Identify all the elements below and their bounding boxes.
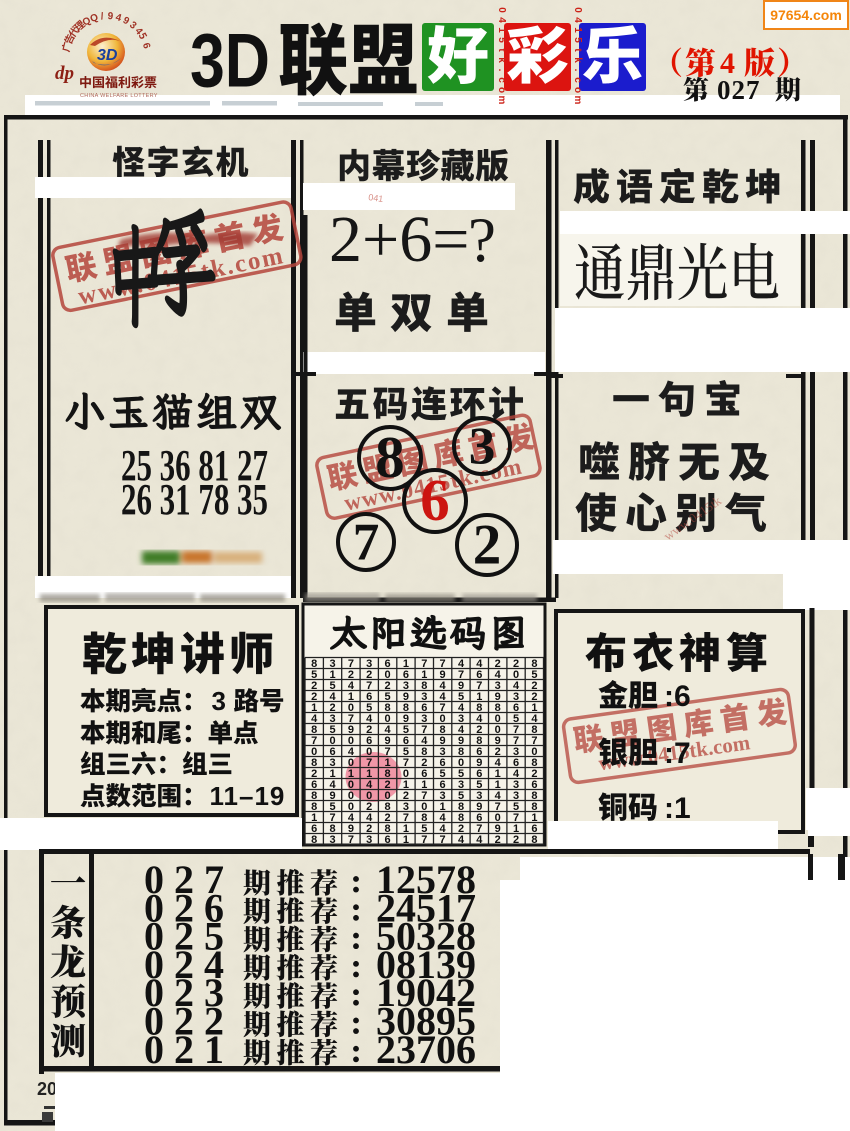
svg-text:3: 3 — [469, 416, 496, 475]
svg-text:o: o — [572, 87, 583, 93]
svg-text:k: k — [572, 57, 583, 63]
svg-text:97654.com: 97654.com — [770, 7, 842, 23]
svg-text:2: 2 — [513, 834, 519, 846]
svg-text:k: k — [496, 57, 507, 63]
svg-text:5: 5 — [496, 37, 507, 43]
svg-text:11–19: 11–19 — [210, 781, 286, 811]
svg-text:0: 0 — [496, 7, 507, 13]
svg-text:4: 4 — [496, 17, 507, 23]
svg-text:8: 8 — [531, 834, 537, 846]
svg-text:4: 4 — [458, 834, 465, 846]
svg-text:CHINA WELFARE LOTTERY: CHINA WELFARE LOTTERY — [80, 93, 158, 99]
svg-text:1: 1 — [496, 27, 507, 33]
svg-text:2: 2 — [473, 514, 502, 577]
svg-text:7: 7 — [440, 834, 446, 846]
svg-text:8: 8 — [375, 425, 404, 490]
svg-text:1: 1 — [403, 834, 409, 846]
svg-text:26 31 78 35: 26 31 78 35 — [121, 475, 268, 524]
svg-text:?: ? — [468, 205, 496, 275]
svg-text:021: 021 — [144, 1027, 234, 1072]
svg-text:3: 3 — [366, 834, 372, 846]
svg-text::7: :7 — [664, 737, 691, 770]
svg-text:4: 4 — [572, 17, 583, 23]
svg-text:.: . — [496, 69, 507, 72]
svg-text:2: 2 — [495, 834, 501, 846]
svg-text:3D: 3D — [97, 47, 118, 64]
svg-text:6: 6 — [420, 468, 449, 533]
svg-text:5: 5 — [572, 37, 583, 43]
svg-text:m: m — [572, 96, 583, 105]
svg-text::6: :6 — [664, 680, 691, 713]
svg-text:8: 8 — [311, 834, 317, 846]
svg-text:0: 0 — [572, 7, 583, 13]
svg-text:23706: 23706 — [376, 1027, 476, 1072]
svg-text:7: 7 — [353, 512, 380, 571]
svg-text:4: 4 — [476, 834, 483, 846]
svg-text:6: 6 — [385, 834, 391, 846]
svg-text:o: o — [496, 87, 507, 93]
svg-text:m: m — [496, 96, 507, 105]
svg-text:3: 3 — [329, 834, 335, 846]
svg-text:7: 7 — [348, 834, 354, 846]
svg-text:027: 027 — [717, 75, 761, 105]
svg-text::1: :1 — [664, 792, 691, 825]
svg-text:dp: dp — [55, 63, 74, 84]
svg-text:1: 1 — [572, 27, 583, 33]
svg-text:3: 3 — [212, 686, 226, 716]
svg-text:7: 7 — [421, 834, 427, 846]
svg-text:2+6=: 2+6= — [329, 203, 469, 276]
svg-text:20: 20 — [37, 1079, 57, 1099]
svg-text:.: . — [572, 69, 583, 72]
svg-text:3D: 3D — [190, 19, 270, 104]
svg-text:c: c — [572, 77, 583, 83]
svg-text:c: c — [496, 77, 507, 83]
